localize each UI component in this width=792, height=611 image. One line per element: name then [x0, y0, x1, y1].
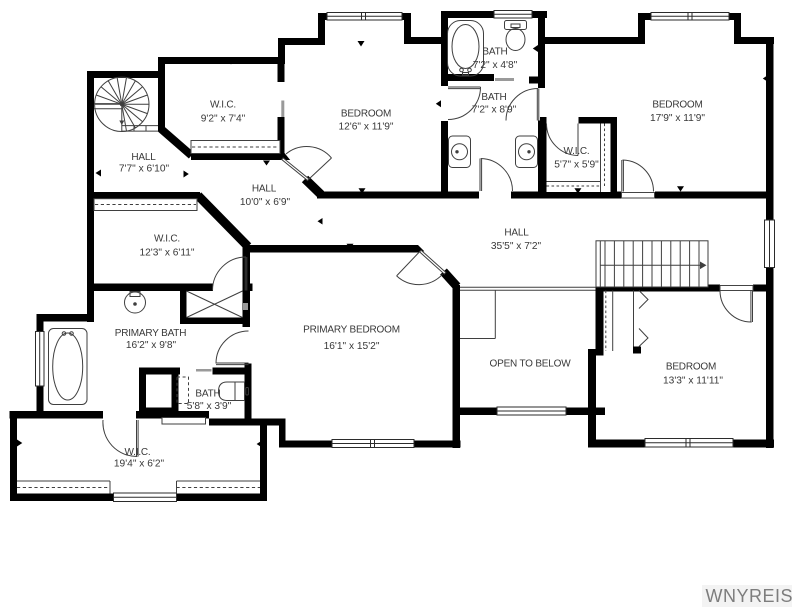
- svg-text:5'8" x 3'9": 5'8" x 3'9": [187, 401, 232, 412]
- svg-text:BEDROOM: BEDROOM: [341, 109, 391, 120]
- svg-text:W.I.C.: W.I.C.: [124, 447, 150, 458]
- svg-text:W.I.C.: W.I.C.: [563, 146, 589, 157]
- svg-text:5'7" x 5'9": 5'7" x 5'9": [554, 160, 599, 171]
- svg-text:7'2" x 8'9": 7'2" x 8'9": [472, 105, 517, 116]
- svg-text:7'7" x 6'10": 7'7" x 6'10": [119, 164, 170, 175]
- svg-text:HALL: HALL: [131, 152, 156, 163]
- svg-text:BATH: BATH: [195, 389, 220, 400]
- svg-text:BATH: BATH: [482, 47, 507, 58]
- svg-text:35'5" x 7'2": 35'5" x 7'2": [491, 241, 542, 252]
- svg-text:7'2" x 4'8": 7'2" x 4'8": [473, 60, 518, 71]
- svg-text:PRIMARY BATH: PRIMARY BATH: [115, 328, 187, 339]
- svg-text:16'2" x 9'8": 16'2" x 9'8": [126, 340, 177, 351]
- svg-text:17'9" x 11'9": 17'9" x 11'9": [650, 113, 705, 124]
- svg-text:9'2" x 7'4": 9'2" x 7'4": [201, 114, 246, 125]
- svg-text:19'4" x 6'2": 19'4" x 6'2": [114, 459, 165, 470]
- svg-text:W.I.C.: W.I.C.: [210, 100, 236, 111]
- svg-text:13'3" x 11'11": 13'3" x 11'11": [663, 376, 723, 387]
- svg-text:BATH: BATH: [481, 92, 506, 103]
- svg-text:12'3" x 6'11": 12'3" x 6'11": [139, 248, 194, 259]
- svg-text:W.I.C.: W.I.C.: [154, 234, 180, 245]
- svg-text:HALL: HALL: [504, 228, 529, 239]
- svg-text:OPEN TO BELOW: OPEN TO BELOW: [490, 359, 572, 370]
- svg-text:PRIMARY BEDROOM: PRIMARY BEDROOM: [303, 325, 400, 336]
- svg-text:BEDROOM: BEDROOM: [652, 100, 702, 111]
- svg-text:HALL: HALL: [252, 184, 277, 195]
- svg-text:12'6" x 11'9": 12'6" x 11'9": [338, 122, 393, 133]
- svg-text:BEDROOM: BEDROOM: [666, 362, 716, 373]
- svg-text:10'0" x 6'9": 10'0" x 6'9": [240, 197, 291, 208]
- svg-text:16'1" x 15'2": 16'1" x 15'2": [324, 341, 380, 352]
- svg-text:WNYREIS: WNYREIS: [705, 586, 792, 606]
